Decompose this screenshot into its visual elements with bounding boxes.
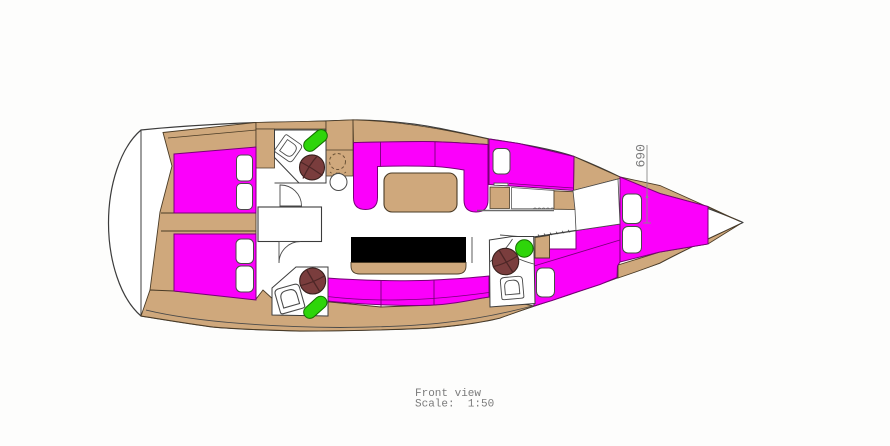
svg-text:690: 690 xyxy=(634,144,649,167)
svg-text:Scale: 1:50: Scale: 1:50 xyxy=(415,399,494,411)
